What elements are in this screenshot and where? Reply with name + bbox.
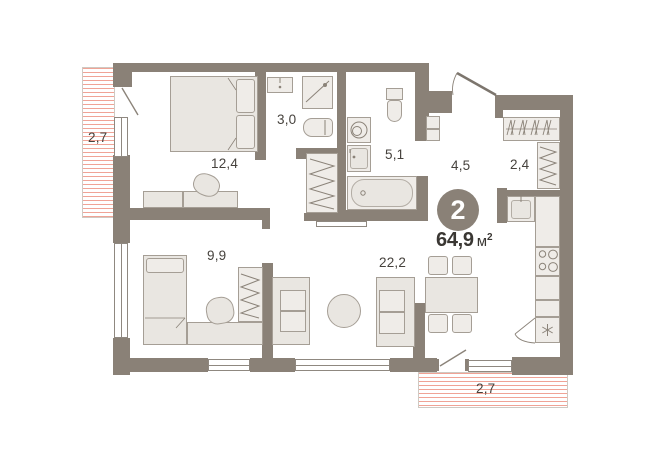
threshold bbox=[316, 221, 367, 227]
balcony-door-left-icon bbox=[122, 88, 138, 115]
meter-box bbox=[426, 129, 440, 141]
rooms-count-value: 2 bbox=[450, 195, 465, 226]
wall-top bbox=[115, 63, 425, 72]
kitchen-counter bbox=[535, 276, 560, 300]
label-living-kitchen: 22,2 bbox=[379, 255, 406, 270]
floor-plan: 2,7 12,4 3,0 5,1 4,5 2,4 9,9 22,2 2,7 2 … bbox=[0, 0, 654, 470]
wall-bedroom-bottom-tail bbox=[262, 220, 270, 229]
label-balcony-bottom: 2,7 bbox=[476, 381, 495, 396]
total-area: 64,9м2 bbox=[436, 229, 493, 252]
clothes-rail-wardrobe bbox=[238, 267, 263, 322]
sofa-left-cushion bbox=[280, 311, 306, 332]
pillow bbox=[236, 115, 255, 149]
balcony-door-bottom-icon bbox=[440, 350, 466, 366]
wall-left-mid bbox=[113, 155, 130, 243]
fridge-door-swing-icon bbox=[515, 318, 535, 343]
dining-chair bbox=[452, 314, 472, 333]
kitchen-sink-basin bbox=[511, 200, 531, 219]
label-bathroom: 5,1 bbox=[385, 147, 404, 162]
dining-chair bbox=[428, 314, 448, 333]
sofa-right-cushion bbox=[379, 290, 405, 312]
window-kitchen-bottom bbox=[468, 360, 512, 372]
window-bedroom-balcony bbox=[114, 117, 128, 157]
dining-table bbox=[425, 277, 478, 313]
window-room2-bottom bbox=[208, 359, 250, 371]
label-wardrobe: 2,4 bbox=[510, 157, 529, 172]
wall-bedroom-bottom bbox=[130, 208, 270, 220]
linen-shelving bbox=[306, 153, 338, 213]
dining-chair bbox=[452, 256, 472, 275]
wall-left-low bbox=[113, 338, 130, 375]
desk bbox=[187, 322, 263, 345]
label-hallway: 4,5 bbox=[451, 158, 470, 173]
wall-bottom-3 bbox=[390, 358, 437, 372]
door-jamb-left bbox=[435, 359, 439, 371]
wall-left-top-block bbox=[113, 63, 132, 87]
toilet-bowl bbox=[387, 100, 402, 122]
wall-bath-bottom bbox=[337, 210, 428, 221]
label-bedroom: 12,4 bbox=[211, 156, 238, 171]
wc-toilet bbox=[303, 118, 333, 137]
bathroom-sink-basin bbox=[350, 148, 368, 169]
window-living-bottom bbox=[295, 359, 390, 371]
wc-sink bbox=[267, 77, 293, 93]
label-wc: 3,0 bbox=[277, 112, 296, 127]
wall-bath-right-low bbox=[417, 176, 428, 221]
toilet-tank bbox=[386, 88, 403, 100]
coffee-table bbox=[327, 294, 361, 328]
wall-wardrobe-left bbox=[495, 108, 503, 118]
wall-wc-bath-divider bbox=[337, 72, 346, 213]
bathtub-basin bbox=[351, 179, 413, 207]
label-room-second: 9,9 bbox=[207, 248, 226, 263]
wardrobe-shelves bbox=[537, 142, 560, 189]
pillow bbox=[236, 79, 255, 113]
sofa-left-cushion bbox=[280, 290, 306, 311]
meter-box bbox=[426, 116, 440, 129]
hanger-rod-section bbox=[503, 117, 560, 141]
wall-bottom-2 bbox=[250, 358, 295, 372]
kitchen-counter bbox=[535, 196, 560, 247]
washing-machine bbox=[347, 117, 371, 143]
pillow bbox=[146, 258, 184, 273]
kitchen-counter bbox=[535, 300, 560, 317]
window-room2-left bbox=[114, 243, 128, 338]
label-balcony-left: 2,7 bbox=[88, 130, 107, 145]
wall-kitchen-stub bbox=[497, 188, 507, 223]
dresser bbox=[143, 191, 183, 208]
total-area-value: 64,9 bbox=[436, 229, 474, 251]
entrance-door-icon bbox=[453, 73, 497, 95]
rooms-count-badge: 2 bbox=[437, 189, 479, 231]
wall-entry-arm bbox=[429, 91, 452, 113]
wall-bottom-right-block bbox=[512, 357, 573, 375]
sofa-right-cushion bbox=[379, 312, 405, 334]
shower-cabin bbox=[302, 76, 333, 109]
wall-right bbox=[560, 95, 573, 375]
fridge bbox=[535, 317, 560, 343]
stove bbox=[535, 247, 560, 276]
dining-chair bbox=[428, 256, 448, 275]
total-area-unit: м2 bbox=[477, 233, 493, 250]
